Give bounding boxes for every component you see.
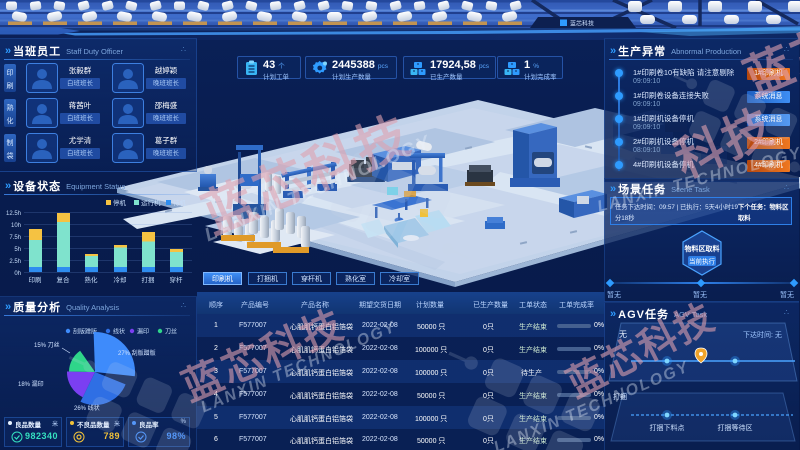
svg-text:无: 无 [619, 330, 627, 339]
svg-text:物料区取料: 物料区取料 [685, 244, 720, 253]
svg-text:26% 线状: 26% 线状 [74, 404, 100, 412]
svg-text:打捆下料点: 打捆下料点 [650, 423, 685, 432]
svg-text:蓝芯科技: 蓝芯科技 [570, 20, 594, 28]
svg-text:熟化: 熟化 [85, 275, 99, 284]
svg-text:2.5h: 2.5h [9, 259, 21, 265]
svg-text:当前执行: 当前执行 [689, 257, 716, 266]
svg-text:漏印: 漏印 [137, 328, 149, 336]
svg-text:复合: 复合 [57, 275, 71, 284]
svg-text:12.5h: 12.5h [6, 211, 21, 217]
svg-text:刀丝: 刀丝 [165, 328, 177, 336]
svg-text:停机: 停机 [113, 198, 127, 207]
svg-text:15% 刀丝: 15% 刀丝 [34, 341, 60, 349]
svg-text:0h: 0h [14, 271, 21, 277]
svg-text:7.5h: 7.5h [9, 235, 21, 241]
svg-text:10h: 10h [11, 223, 21, 229]
svg-text:印刷: 印刷 [29, 276, 42, 284]
svg-text:运行机: 运行机 [141, 198, 161, 207]
svg-text:线状: 线状 [113, 328, 125, 336]
svg-text:下达时间: 无: 下达时间: 无 [743, 330, 782, 339]
svg-text:打捆等待区: 打捆等待区 [718, 423, 753, 432]
svg-text:18% 漏印: 18% 漏印 [18, 380, 44, 388]
svg-text:穿杆: 穿杆 [170, 275, 184, 284]
svg-text:打捆: 打捆 [142, 275, 155, 284]
svg-text:27% 刮版蹭版: 27% 刮版蹭版 [118, 349, 156, 357]
svg-text:打捆: 打捆 [613, 392, 627, 401]
svg-text:刮版蹭版: 刮版蹭版 [73, 328, 97, 336]
svg-text:冷却: 冷却 [114, 275, 127, 284]
svg-text:5h: 5h [14, 247, 21, 253]
svg-text:待机: 待机 [173, 198, 187, 207]
